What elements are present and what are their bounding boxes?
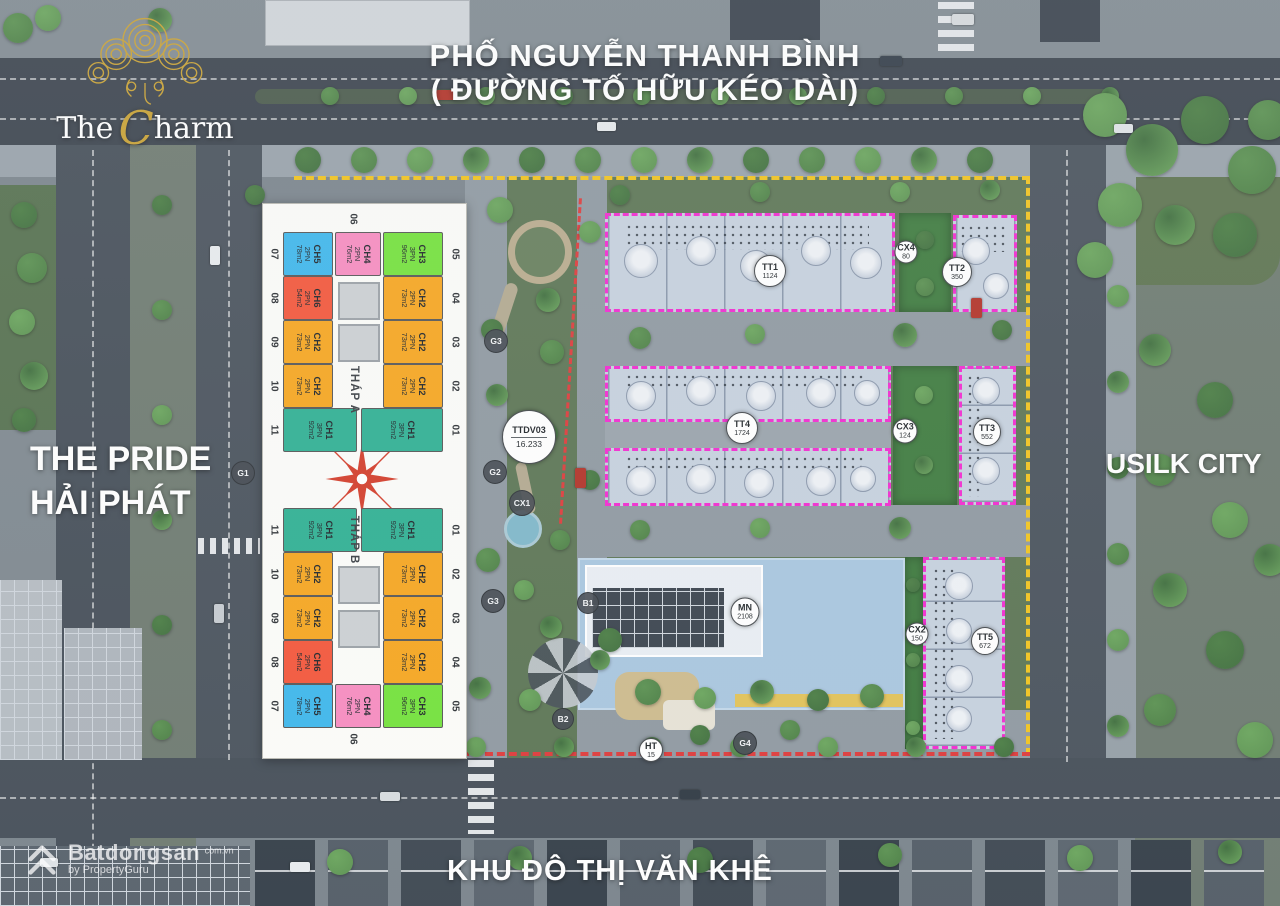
tree xyxy=(1107,715,1129,737)
roof-tree xyxy=(945,665,973,693)
tree xyxy=(536,288,560,312)
unit-label: CH62PN54m2 xyxy=(283,276,333,320)
roof-tree xyxy=(972,457,1000,485)
unit-label: CH52PN78m2 xyxy=(283,684,333,728)
unit-number: 03 xyxy=(447,320,462,364)
badge-CX3: CX3124 xyxy=(893,419,918,444)
tree xyxy=(916,231,934,249)
car xyxy=(1114,124,1133,133)
roof-ridge xyxy=(1058,870,1118,872)
tree xyxy=(994,737,1014,757)
marker-G4: G4 xyxy=(733,731,757,755)
road-internal-h1 xyxy=(607,312,1030,366)
tree xyxy=(469,677,491,699)
roof-tree xyxy=(744,468,774,498)
tree xyxy=(11,202,37,228)
pride-building-1 xyxy=(0,580,62,760)
tree xyxy=(514,580,534,600)
roof-tree xyxy=(801,236,831,266)
unit-number: 05 xyxy=(447,684,462,728)
tree xyxy=(1237,722,1273,758)
pride-building-2 xyxy=(64,628,142,760)
tree xyxy=(476,548,500,572)
tree xyxy=(486,384,508,406)
tree xyxy=(687,147,713,173)
tree xyxy=(463,147,489,173)
tree xyxy=(295,147,321,173)
roof-ridge xyxy=(1131,870,1191,872)
tree xyxy=(1139,334,1171,366)
tower-core xyxy=(338,566,380,604)
left-area-line2: HẢI PHÁT xyxy=(30,482,211,526)
watermark-name: Batdongsan xyxy=(68,840,200,865)
bottom-area-label: KHU ĐÔ THỊ VĂN KHÊ xyxy=(300,855,920,888)
unit-number: 07 xyxy=(266,232,281,276)
tree xyxy=(1107,285,1129,307)
boundary-yellow-top xyxy=(294,176,1030,180)
top-road-line2: ( ĐƯỜNG TỐ HỮU KÉO DÀI) xyxy=(320,74,970,108)
left-area-label: THE PRIDE HẢI PHÁT xyxy=(30,438,211,525)
tree xyxy=(1248,100,1280,140)
roof-tree xyxy=(686,376,716,406)
unit-cell-CH2: CH22PN73m2 xyxy=(383,364,443,408)
logo-text-c: C xyxy=(118,101,153,155)
tree xyxy=(1213,213,1257,257)
top-road-line1: PHỐ NGUYỄN THANH BÌNH xyxy=(320,38,970,74)
roof-tree xyxy=(850,247,882,279)
tree xyxy=(893,323,917,347)
unit-label: CH22PN73m2 xyxy=(283,552,333,596)
tree xyxy=(17,253,47,283)
unit-number: 07 xyxy=(266,684,281,728)
tree xyxy=(407,147,433,173)
marker-CX1: CX1 xyxy=(509,490,535,516)
unit-label: CH62PN54m2 xyxy=(283,640,333,684)
roof-tree xyxy=(850,466,876,492)
unit-cell-CH2: CH22PN73m2 xyxy=(383,552,443,596)
tree xyxy=(152,195,172,215)
unit-number: 02 xyxy=(447,364,462,408)
tree xyxy=(635,679,661,705)
tree xyxy=(540,616,562,638)
unit-number: 08 xyxy=(266,640,281,684)
tower-core xyxy=(338,282,380,320)
unit-label: CH22PN73m2 xyxy=(383,276,443,320)
tree xyxy=(152,720,172,740)
tree xyxy=(152,615,172,635)
tower-name: THÁP A xyxy=(344,360,360,420)
watermark: Batdongsan com.vn by PropertyGuru xyxy=(22,840,234,882)
tree xyxy=(1254,544,1280,576)
tree xyxy=(610,185,630,205)
unit-cell-CH4: CH42PN76m2 xyxy=(335,232,381,276)
unit-cell-CH6: CH62PN54m2 xyxy=(283,276,333,320)
unit-number: 02 xyxy=(447,552,462,596)
car xyxy=(214,604,224,623)
tree xyxy=(750,182,770,202)
unit-number: 08 xyxy=(266,276,281,320)
tree xyxy=(3,13,33,43)
tree xyxy=(890,182,910,202)
roof-tree xyxy=(626,381,656,411)
crosswalk-bottom xyxy=(468,760,494,834)
unit-label: CH33PN96m2 xyxy=(383,232,443,276)
car xyxy=(210,246,220,265)
unit-label: CH22PN73m2 xyxy=(283,596,333,640)
badge-CX2: CX2150 xyxy=(906,623,929,646)
unit-cell-CH4: CH42PN76m2 xyxy=(335,684,381,728)
building-north-2 xyxy=(730,0,820,40)
tree xyxy=(1212,502,1248,538)
boundary-yellow-right xyxy=(1026,176,1030,756)
tree xyxy=(750,518,770,538)
tree xyxy=(906,653,920,667)
roof-tree xyxy=(945,572,973,600)
tree xyxy=(1067,845,1093,871)
unit-label: CH22PN73m2 xyxy=(283,364,333,408)
tree xyxy=(860,684,884,708)
watermark-domain: com.vn xyxy=(205,846,234,856)
unit-cell-CH2: CH22PN73m2 xyxy=(283,364,333,408)
unit-number: 06 xyxy=(345,210,360,228)
tree xyxy=(630,520,650,540)
tree xyxy=(967,147,993,173)
marker-G1: G1 xyxy=(231,461,255,485)
tree xyxy=(1153,573,1187,607)
roof-tree xyxy=(686,236,716,266)
tree xyxy=(20,362,48,390)
roof-ridge xyxy=(1204,870,1264,872)
unit-label: CH22PN73m2 xyxy=(383,552,443,596)
tree xyxy=(152,300,172,320)
roof-tree xyxy=(972,377,1000,405)
unit-number: 10 xyxy=(266,364,281,408)
unit-cell-CH2: CH22PN73m2 xyxy=(283,320,333,364)
tree xyxy=(1023,87,1041,105)
unit-cell-CH5: CH52PN78m2 xyxy=(283,232,333,276)
tree xyxy=(1155,205,1195,245)
unit-label: CH33PN96m2 xyxy=(383,684,443,728)
roof-tree xyxy=(686,464,716,494)
unit-cell-CH1: CH13PN92m2 xyxy=(361,408,443,452)
tree xyxy=(1206,631,1244,669)
badge-TT1: TT11124 xyxy=(754,255,786,287)
unit-cell-CH2: CH22PN73m2 xyxy=(383,640,443,684)
tree xyxy=(629,327,651,349)
unit-number: 04 xyxy=(447,640,462,684)
tree xyxy=(12,408,36,432)
tree xyxy=(631,147,657,173)
tree xyxy=(889,517,911,539)
tree xyxy=(906,721,920,735)
roof-ridge xyxy=(912,870,972,872)
car xyxy=(952,14,974,25)
roof-tree xyxy=(946,618,972,644)
marker-B2: B2 xyxy=(552,708,574,730)
roof-tree xyxy=(854,380,880,406)
unit-cell-CH2: CH22PN73m2 xyxy=(383,596,443,640)
tree xyxy=(1098,183,1142,227)
right-area-label: USILK CITY xyxy=(1106,448,1262,480)
lane-bottom xyxy=(0,797,1280,799)
unit-label: CH22PN73m2 xyxy=(283,320,333,364)
marker-G2: G2 xyxy=(483,460,507,484)
unit-number: 10 xyxy=(266,552,281,596)
unit-number: 11 xyxy=(266,508,281,552)
tree xyxy=(1181,96,1229,144)
unit-number: 11 xyxy=(266,408,281,452)
tree xyxy=(575,147,601,173)
roof-ridge xyxy=(985,870,1045,872)
tree xyxy=(916,278,934,296)
tree xyxy=(1144,694,1176,726)
left-area-line1: THE PRIDE xyxy=(30,438,211,482)
unit-label: CH22PN73m2 xyxy=(383,320,443,364)
unit-number: 06 xyxy=(345,730,360,748)
lane-left-inner xyxy=(228,150,230,760)
tree xyxy=(1107,543,1129,565)
car xyxy=(971,298,982,318)
roof-units-pattern xyxy=(625,223,869,251)
building-north-3 xyxy=(1040,0,1100,42)
tree xyxy=(799,147,825,173)
tree xyxy=(915,456,933,474)
unit-cell-CH1: CH13PN92m2 xyxy=(361,508,443,552)
tree xyxy=(694,687,716,709)
unit-number: 01 xyxy=(447,508,462,552)
car xyxy=(380,792,400,801)
tree xyxy=(519,147,545,173)
badge-HT: HT15 xyxy=(639,738,663,762)
car xyxy=(597,122,616,131)
tree xyxy=(598,628,622,652)
tree xyxy=(750,680,774,704)
house-roof xyxy=(912,840,972,906)
tree xyxy=(1197,382,1233,418)
tower-core xyxy=(338,610,380,648)
unit-cell-CH2: CH22PN73m2 xyxy=(283,596,333,640)
road-right xyxy=(1030,145,1106,770)
tree xyxy=(487,197,513,223)
unit-cell-CH2: CH22PN73m2 xyxy=(383,320,443,364)
tree xyxy=(1077,242,1113,278)
tree xyxy=(743,147,769,173)
unit-cell-CH2: CH22PN73m2 xyxy=(283,552,333,596)
tree xyxy=(579,221,601,243)
marker-B1: B1 xyxy=(577,592,599,614)
unit-label: CH22PN73m2 xyxy=(383,596,443,640)
badge-TTDV03: TTDV0316.233 xyxy=(502,410,556,464)
roof-tree xyxy=(624,244,658,278)
tree xyxy=(554,737,574,757)
project-logo: The Charm xyxy=(35,5,255,155)
tree xyxy=(807,689,829,711)
tree xyxy=(911,147,937,173)
unit-label: CH42PN76m2 xyxy=(335,232,381,276)
roof-tree xyxy=(746,381,776,411)
marker-G3A: G3 xyxy=(484,329,508,353)
car xyxy=(575,468,586,488)
unit-number: 04 xyxy=(447,276,462,320)
tree xyxy=(745,324,765,344)
logo-text-the: The xyxy=(56,111,113,146)
tree xyxy=(915,386,933,404)
logo-emblem-icon xyxy=(65,5,225,105)
tree xyxy=(540,340,564,364)
site-masterplan: T B N Đ PHỐ NGUYỄN THANH BÌNH ( ĐƯỜNG TỐ… xyxy=(0,0,1280,906)
tree xyxy=(466,737,486,757)
unit-number: 01 xyxy=(447,408,462,452)
unit-cell-CH3: CH33PN96m2 xyxy=(383,684,443,728)
badge-TT2: TT2350 xyxy=(942,257,972,287)
tower-core xyxy=(338,324,380,362)
tower-name: THÁP B xyxy=(344,510,360,570)
unit-cell-CH5: CH52PN78m2 xyxy=(283,684,333,728)
tree xyxy=(550,530,570,550)
unit-cell-CH3: CH33PN96m2 xyxy=(383,232,443,276)
crosswalk-left xyxy=(198,538,260,554)
house-roof xyxy=(1131,840,1191,906)
house-roof xyxy=(985,840,1045,906)
marker-G3B: G3 xyxy=(481,589,505,613)
logo-text-harm: harm xyxy=(154,111,234,146)
tree xyxy=(519,689,541,711)
tree xyxy=(690,725,710,745)
unit-label: CH22PN73m2 xyxy=(383,640,443,684)
road-internal-h2 xyxy=(607,505,1030,557)
badge-CX4: CX480 xyxy=(895,241,918,264)
tree xyxy=(1218,840,1242,864)
tree xyxy=(351,147,377,173)
unit-number: 03 xyxy=(447,596,462,640)
roof-tree xyxy=(806,466,836,496)
tree xyxy=(855,147,881,173)
tree xyxy=(245,185,265,205)
badge-MN: MN2108 xyxy=(731,598,760,627)
tree xyxy=(906,737,926,757)
tree xyxy=(1126,124,1178,176)
watermark-logo-icon xyxy=(22,840,62,882)
top-road-title: PHỐ NGUYỄN THANH BÌNH ( ĐƯỜNG TỐ HỮU KÉO… xyxy=(320,38,970,108)
tree xyxy=(780,720,800,740)
badge-TT3: TT3552 xyxy=(973,418,1001,446)
unit-label: CH22PN73m2 xyxy=(383,364,443,408)
unit-label: CH42PN76m2 xyxy=(335,684,381,728)
tree xyxy=(1107,629,1129,651)
tree xyxy=(9,309,35,335)
lane-right xyxy=(1066,150,1068,762)
roof-tree xyxy=(626,466,656,496)
tree xyxy=(980,180,1000,200)
tree xyxy=(818,737,838,757)
unit-number: 09 xyxy=(266,596,281,640)
badge-TT5: TT5672 xyxy=(971,627,999,655)
tree xyxy=(590,650,610,670)
unit-cell-CH2: CH22PN73m2 xyxy=(383,276,443,320)
badge-TT4: TT41724 xyxy=(726,412,758,444)
unit-label: CH13PN92m2 xyxy=(361,508,443,552)
roof-tree xyxy=(946,706,972,732)
tree xyxy=(992,320,1012,340)
unit-number: 09 xyxy=(266,320,281,364)
car xyxy=(680,790,700,799)
roof-tree xyxy=(806,378,836,408)
tree xyxy=(906,578,920,592)
roof-tree xyxy=(983,273,1009,299)
unit-cell-CH6: CH62PN54m2 xyxy=(283,640,333,684)
tree xyxy=(1107,371,1129,393)
unit-label: CH52PN78m2 xyxy=(283,232,333,276)
plaza-circle xyxy=(508,220,572,284)
tree xyxy=(152,405,172,425)
unit-label: CH13PN92m2 xyxy=(361,408,443,452)
tree xyxy=(1228,146,1276,194)
unit-number: 05 xyxy=(447,232,462,276)
